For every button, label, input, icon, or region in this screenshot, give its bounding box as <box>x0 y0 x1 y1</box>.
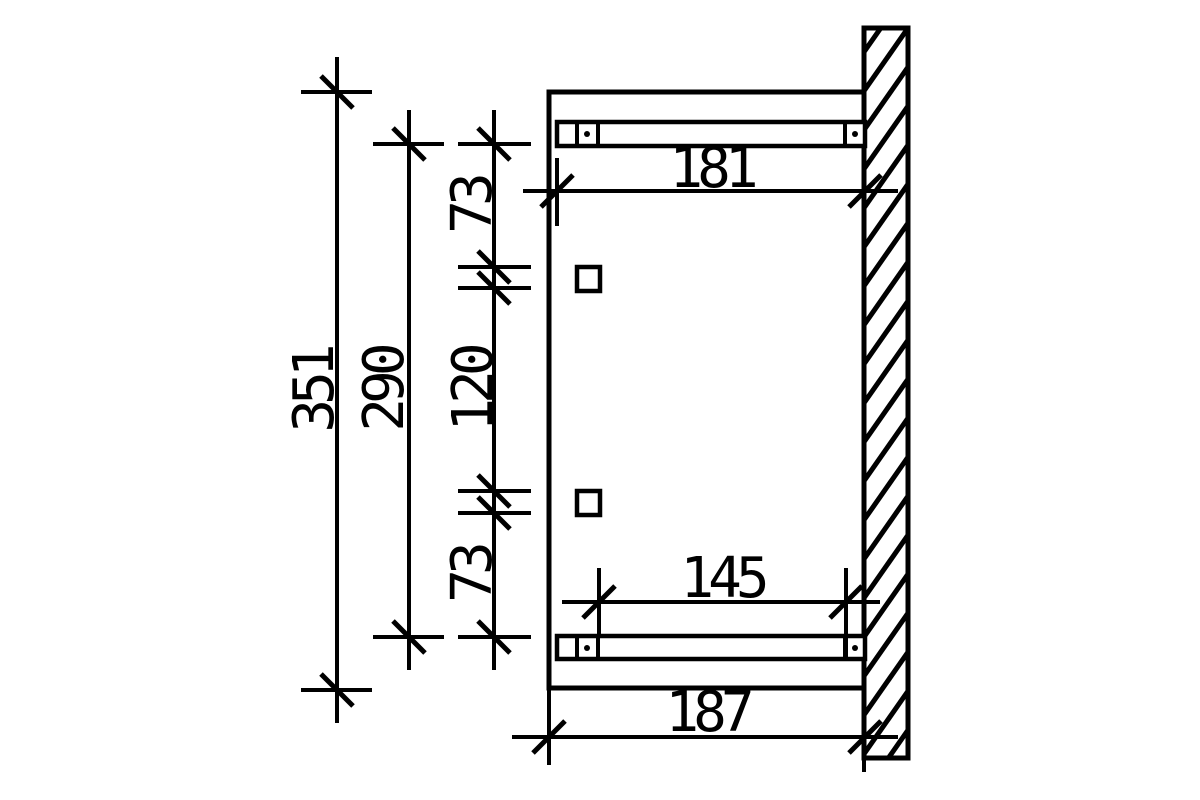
top-rafter-bolt-dot-right <box>852 131 858 137</box>
top-rafter-bolt-dot-left <box>584 131 590 137</box>
bottom-rafter-body <box>557 636 865 659</box>
bolt-square-upper <box>577 267 600 291</box>
dim-label-bolt-spacing: 120 <box>441 345 506 431</box>
technical-drawing: 351 290 73 120 73 <box>0 0 1200 800</box>
dim-overall-depth: 187 <box>512 680 898 765</box>
wall-hatching <box>864 0 908 793</box>
drawing-canvas: 351 290 73 120 73 <box>0 0 1200 800</box>
dim-bracket-height: 290 <box>352 110 444 670</box>
bottom-rafter-bolt-dot-right <box>852 645 858 651</box>
dim-label-upper-rafter: 181 <box>669 136 754 201</box>
bottom-rafter <box>557 636 865 659</box>
bottom-rafter-bolt-dot-left <box>584 645 590 651</box>
dim-label-bracket-height: 290 <box>352 345 417 431</box>
dim-chain-offsets: 73 120 73 <box>440 110 531 670</box>
dim-label-overall-height: 351 <box>282 347 347 432</box>
dim-label-overall-depth: 187 <box>665 680 750 745</box>
dim-label-upper-offset: 73 <box>440 176 505 234</box>
bolt-square-lower <box>577 491 600 515</box>
dim-label-lower-rafter: 145 <box>680 546 765 611</box>
dim-label-lower-offset: 73 <box>440 545 505 603</box>
dim-upper-rafter: 181 <box>523 136 898 226</box>
wall-section <box>864 0 908 793</box>
